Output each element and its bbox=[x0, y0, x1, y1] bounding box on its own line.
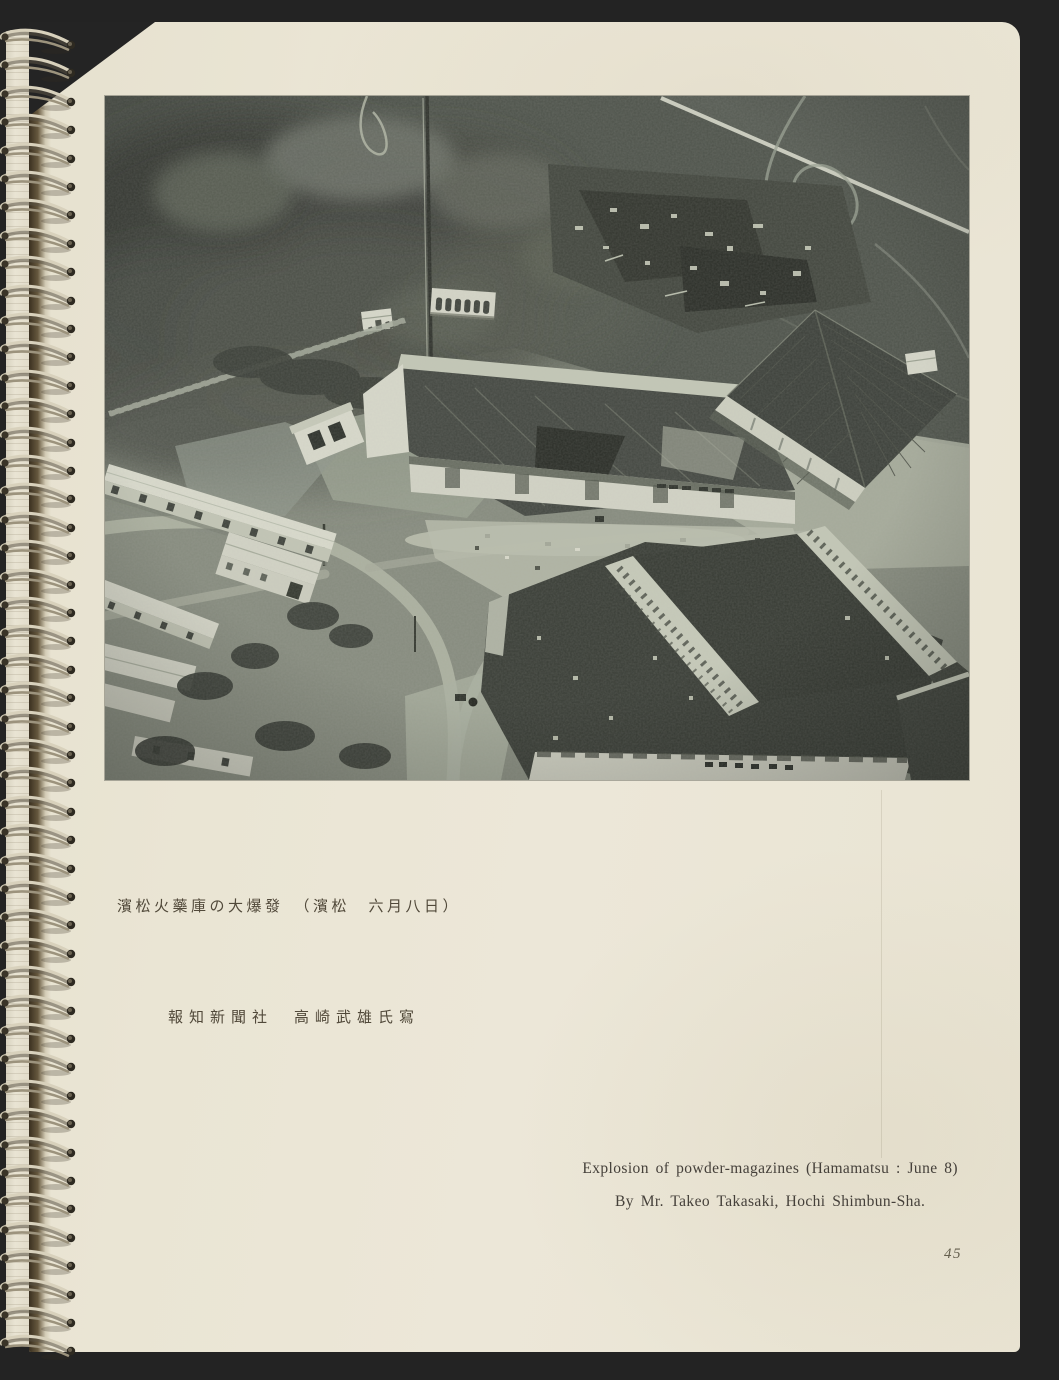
binding-ring bbox=[0, 908, 84, 938]
binding-ring bbox=[0, 255, 84, 285]
vignette bbox=[105, 96, 969, 780]
binding-ring bbox=[0, 113, 84, 143]
binding-ring bbox=[0, 852, 84, 882]
binding-ring bbox=[0, 823, 84, 853]
page-crease bbox=[881, 790, 882, 1158]
aerial-photograph bbox=[105, 96, 969, 780]
binding-ring bbox=[0, 28, 84, 58]
binding-ring bbox=[0, 1050, 84, 1080]
binding-ring bbox=[0, 284, 84, 314]
binding-ring bbox=[0, 965, 84, 995]
caption-ja-line2: 報知新聞社 高崎武雄氏寫 bbox=[168, 999, 461, 1036]
caption-ja-line1: 濱松火藥庫の大爆發 （濱松 六月八日） bbox=[117, 888, 461, 925]
binding-ring bbox=[0, 142, 84, 172]
spiral-album-scan: 濱松火藥庫の大爆發 （濱松 六月八日） 報知新聞社 高崎武雄氏寫 Explosi… bbox=[0, 0, 1059, 1380]
binding-ring bbox=[0, 1221, 84, 1251]
page-number: 45 bbox=[944, 1246, 962, 1263]
binding-ring bbox=[0, 1107, 84, 1137]
album-page: 濱松火藥庫の大爆發 （濱松 六月八日） 報知新聞社 高崎武雄氏寫 Explosi… bbox=[29, 22, 1020, 1352]
binding-ring bbox=[0, 653, 84, 683]
binding-ring bbox=[0, 56, 84, 86]
binding-ring bbox=[0, 170, 84, 200]
binding-ring bbox=[0, 795, 84, 825]
binding-ring bbox=[0, 340, 84, 370]
caption-english: Explosion of powder-magazines (Hamamatsu… bbox=[582, 1152, 958, 1218]
binding-ring bbox=[0, 397, 84, 427]
binding-ring bbox=[0, 596, 84, 626]
binding-ring bbox=[0, 1249, 84, 1279]
binding-ring bbox=[0, 1136, 84, 1166]
binding-ring bbox=[0, 681, 84, 711]
scan-backdrop: { "book_page": { "page_number": "45", "p… bbox=[0, 0, 1059, 1380]
binding-ring bbox=[0, 994, 84, 1024]
binding-ring bbox=[0, 1334, 84, 1364]
caption-en-line2: By Mr. Takeo Takasaki, Hochi Shimbun-Sha… bbox=[582, 1185, 958, 1218]
binding-ring bbox=[0, 454, 84, 484]
binding-ring bbox=[0, 766, 84, 796]
binding-ring bbox=[0, 937, 84, 967]
binding-ring bbox=[0, 1164, 84, 1194]
caption-en-line1: Explosion of powder-magazines (Hamamatsu… bbox=[582, 1152, 958, 1185]
spiral-binding bbox=[0, 0, 95, 1380]
binding-ring bbox=[0, 426, 84, 456]
binding-ring bbox=[0, 312, 84, 342]
binding-ring bbox=[0, 511, 84, 541]
binding-ring bbox=[0, 1192, 84, 1222]
binding-ring bbox=[0, 1278, 84, 1308]
binding-ring bbox=[0, 539, 84, 569]
binding-ring bbox=[0, 85, 84, 115]
binding-ring bbox=[0, 1022, 84, 1052]
binding-ring bbox=[0, 1079, 84, 1109]
binding-ring bbox=[0, 482, 84, 512]
binding-ring bbox=[0, 1306, 84, 1336]
binding-ring bbox=[0, 710, 84, 740]
binding-ring bbox=[0, 624, 84, 654]
binding-ring bbox=[0, 227, 84, 257]
binding-ring bbox=[0, 369, 84, 399]
binding-ring bbox=[0, 568, 84, 598]
caption-japanese: 濱松火藥庫の大爆發 （濱松 六月八日） 報知新聞社 高崎武雄氏寫 bbox=[117, 814, 461, 1110]
binding-ring bbox=[0, 198, 84, 228]
binding-ring bbox=[0, 880, 84, 910]
binding-ring bbox=[0, 738, 84, 768]
